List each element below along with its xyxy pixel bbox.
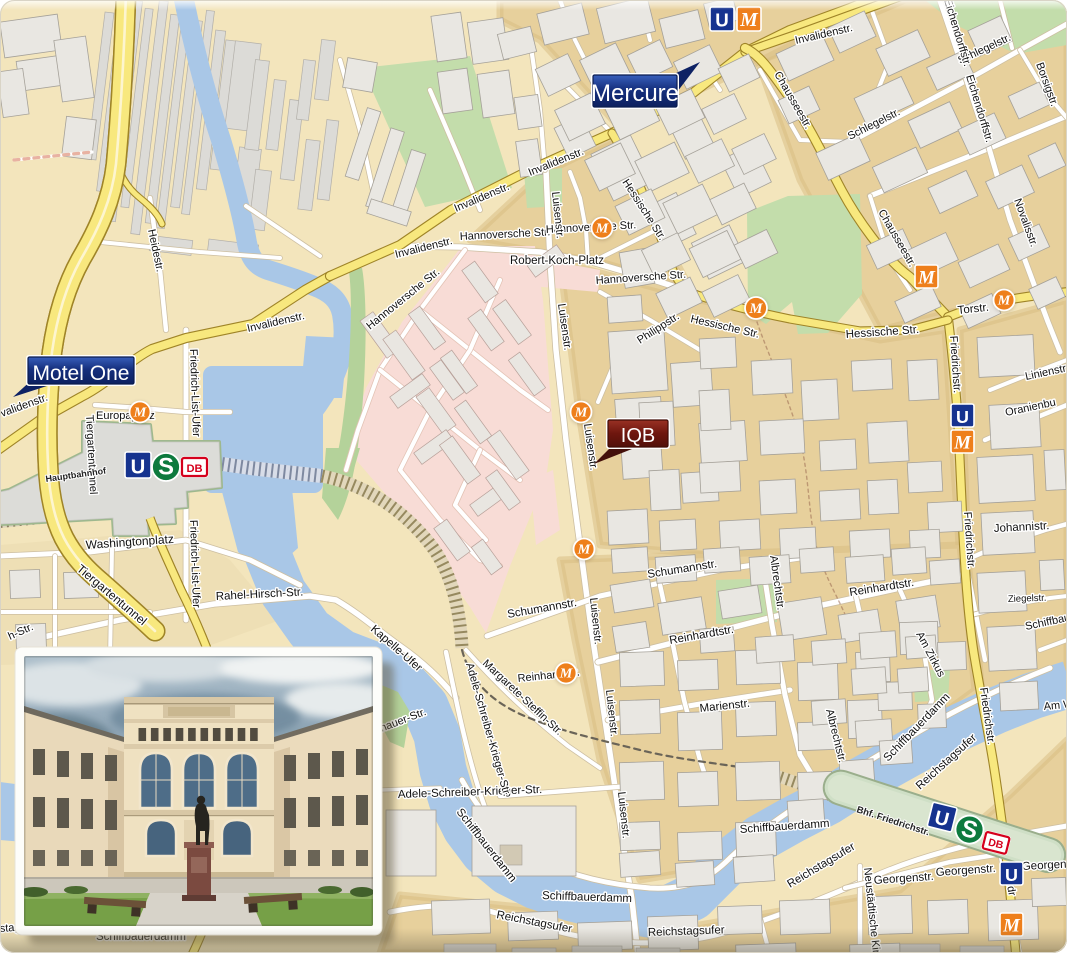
svg-text:M: M <box>574 405 588 421</box>
svg-text:M: M <box>748 301 763 317</box>
svg-text:M: M <box>577 542 591 558</box>
svg-text:M: M <box>917 267 936 288</box>
svg-text:Motel One: Motel One <box>33 362 130 385</box>
svg-text:U: U <box>131 456 146 478</box>
svg-text:M: M <box>739 9 759 31</box>
svg-text:M: M <box>595 221 609 237</box>
svg-text:M: M <box>997 293 1011 309</box>
svg-text:Mercure: Mercure <box>591 80 679 107</box>
svg-text:U: U <box>715 10 729 31</box>
svg-text:Georgens: Georgens <box>1022 858 1067 873</box>
svg-text:IQB: IQB <box>621 425 655 447</box>
svg-text:U: U <box>956 407 969 427</box>
svg-text:M: M <box>133 405 147 421</box>
svg-text:DB: DB <box>186 463 202 475</box>
svg-text:M: M <box>953 432 972 453</box>
svg-text:U: U <box>1005 865 1018 885</box>
svg-text:S: S <box>158 454 174 481</box>
svg-text:Robert-Koch-Platz: Robert-Koch-Platz <box>510 255 604 267</box>
svg-text:Am W: Am W <box>1043 698 1067 713</box>
svg-text:Ziegelstr.: Ziegelstr. <box>1008 593 1047 605</box>
svg-text:M: M <box>559 666 573 682</box>
